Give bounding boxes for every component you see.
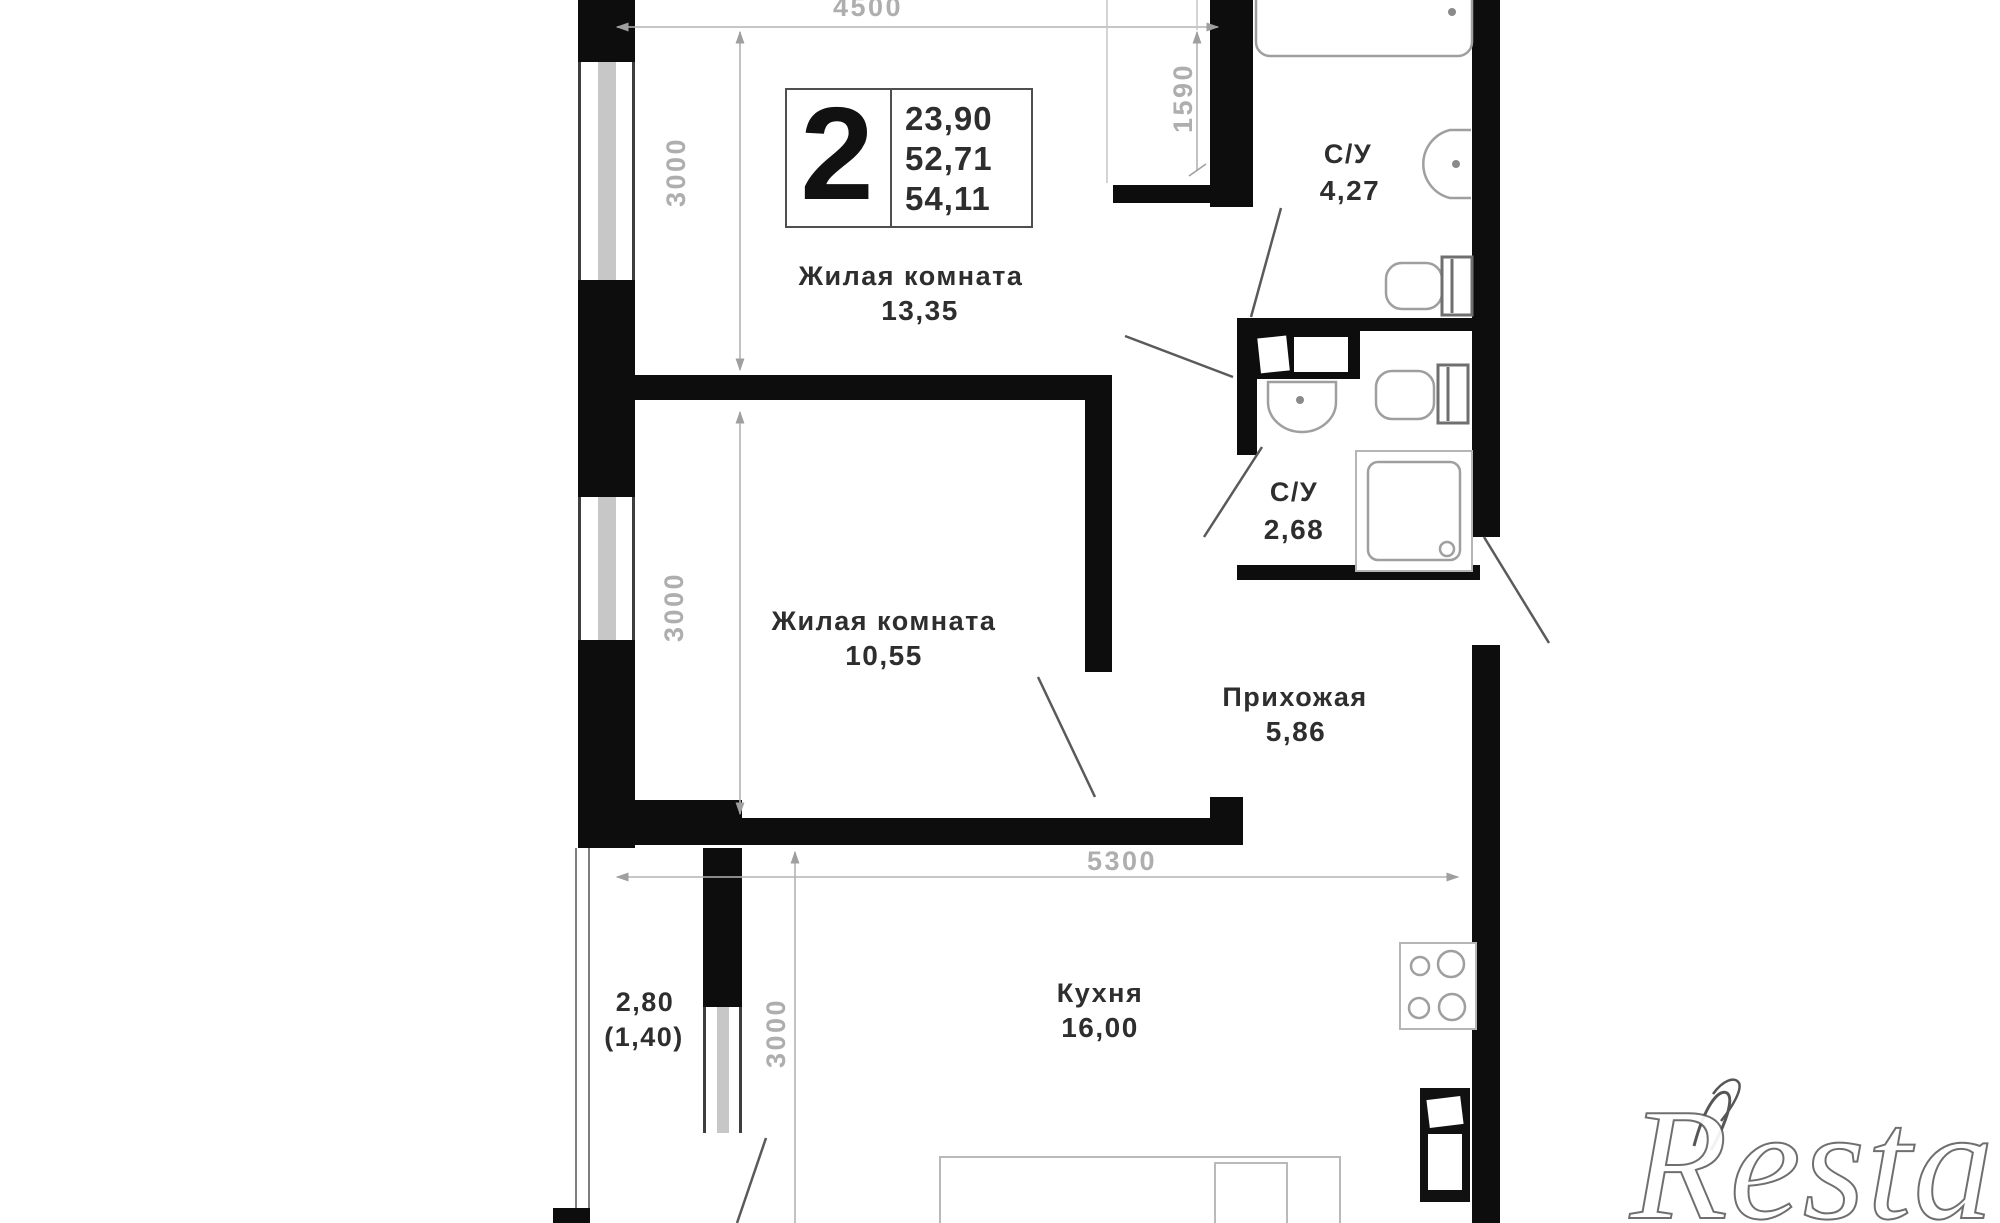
dimension-lines: [617, 0, 1458, 1223]
toilet-tank-icon: [1438, 365, 1468, 423]
shower-drain-icon: [1440, 542, 1454, 556]
stove-burner: [1439, 994, 1465, 1020]
sink-faucet-icon: [1452, 160, 1460, 168]
area-value: 52,71: [905, 140, 1025, 180]
area-value: 23,90: [905, 100, 1025, 140]
fridge-body-pane: [1428, 1134, 1462, 1190]
bathtub-faucet-icon: [1448, 8, 1456, 16]
washbasin-faucet-icon: [1296, 396, 1304, 404]
vent-shaft-cell: [1257, 336, 1289, 374]
stove-burner: [1438, 951, 1464, 977]
door-room2: [1038, 677, 1095, 797]
washbasin-icon: [1268, 382, 1336, 432]
door-balcony: [737, 1138, 766, 1223]
door-bathroom1: [1251, 208, 1281, 317]
door-room1: [1125, 336, 1233, 377]
toilet-tank-icon: [1442, 257, 1472, 315]
door-entrance: [1484, 537, 1549, 643]
door-bathroom2: [1204, 447, 1262, 537]
door-leaves: [737, 208, 1549, 1223]
kitchen-fixtures: [940, 943, 1476, 1223]
bathtub-icon: [1256, 0, 1472, 56]
bathroom1-fixtures: [1256, 0, 1472, 315]
watermark-text: Restate: [1630, 1072, 2000, 1223]
unit-info-card: 2 23,90 52,71 54,11: [785, 88, 1033, 228]
bathroom2-fixtures: [1268, 365, 1472, 571]
floor-plan: 2 23,90 52,71 54,11 Жилая комната 13,35 …: [0, 0, 2000, 1223]
toilet-bowl-icon: [1376, 371, 1434, 419]
toilet-bowl-icon: [1386, 263, 1442, 309]
vent-shaft: [1253, 331, 1360, 379]
stove-burner: [1411, 957, 1429, 975]
vent-shaft-cell: [1294, 337, 1348, 372]
kitchen-sink-icon: [1215, 1163, 1287, 1223]
card-divider: [890, 90, 892, 226]
sink-icon: [1423, 130, 1471, 198]
fridge-door-pane: [1426, 1096, 1463, 1128]
stove-burner: [1409, 998, 1429, 1018]
rooms-count: 2: [787, 84, 887, 224]
area-value: 54,11: [905, 180, 1025, 220]
